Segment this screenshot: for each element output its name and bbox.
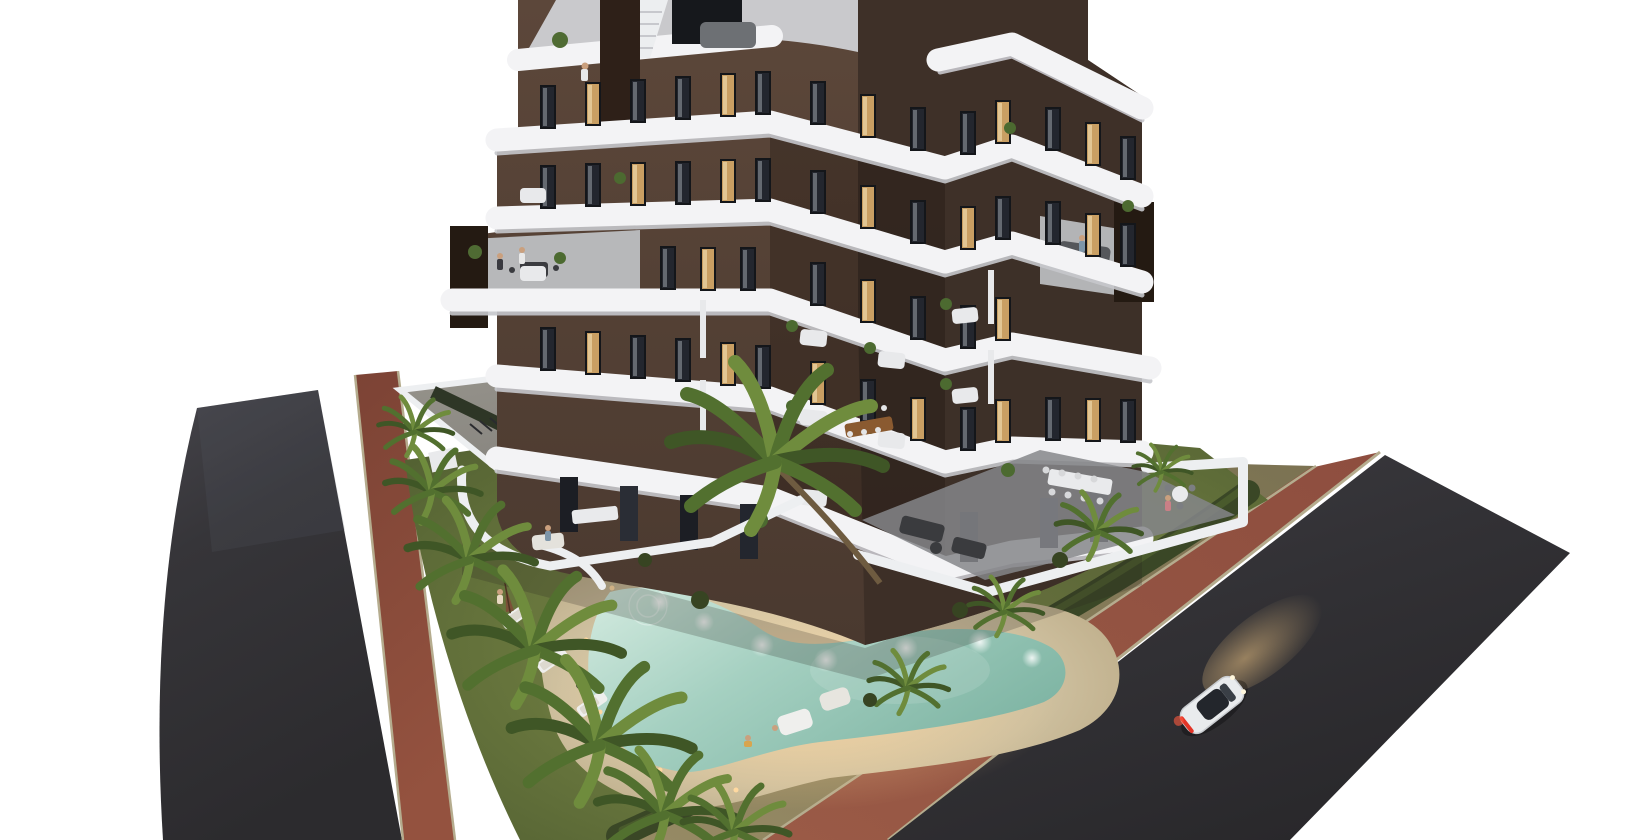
window xyxy=(630,79,646,123)
window xyxy=(810,170,826,214)
window xyxy=(540,327,556,371)
window-lit xyxy=(720,159,736,203)
terrace-plant xyxy=(468,245,482,259)
window xyxy=(910,200,926,244)
window-lit xyxy=(960,206,976,250)
window-lit xyxy=(860,94,876,138)
window xyxy=(630,335,646,379)
window-lit xyxy=(700,247,716,291)
window xyxy=(1045,201,1061,245)
window xyxy=(755,158,771,202)
window xyxy=(1120,136,1136,180)
window-lit xyxy=(585,331,601,375)
window xyxy=(810,81,826,125)
window xyxy=(675,338,691,382)
window xyxy=(1045,397,1061,441)
window-lit xyxy=(995,399,1011,443)
window xyxy=(675,161,691,205)
window xyxy=(910,296,926,340)
window xyxy=(755,71,771,115)
window xyxy=(585,163,601,207)
window-lit xyxy=(860,185,876,229)
rooftop-plant xyxy=(552,32,568,48)
window xyxy=(740,247,756,291)
window xyxy=(675,76,691,120)
rooftop-sofa xyxy=(700,22,756,48)
window-lit xyxy=(1085,213,1101,257)
window-lit xyxy=(720,73,736,117)
window xyxy=(660,246,676,290)
window xyxy=(960,407,976,451)
window-lit xyxy=(630,162,646,206)
window xyxy=(910,107,926,151)
window-lit xyxy=(995,297,1011,341)
window-lit xyxy=(1085,398,1101,442)
window xyxy=(960,111,976,155)
rooftop-person xyxy=(581,63,589,82)
window-lit xyxy=(1085,122,1101,166)
window-lit xyxy=(585,82,601,126)
window xyxy=(810,262,826,306)
window-lit xyxy=(910,397,926,441)
window-lit xyxy=(860,279,876,323)
window xyxy=(1120,399,1136,443)
bistro-table xyxy=(1172,486,1188,502)
window xyxy=(995,196,1011,240)
window xyxy=(1120,223,1136,267)
window-lit xyxy=(995,100,1011,144)
window xyxy=(540,85,556,129)
terrace-planter xyxy=(1001,463,1015,477)
architectural-render xyxy=(0,0,1638,840)
window xyxy=(1045,107,1061,151)
